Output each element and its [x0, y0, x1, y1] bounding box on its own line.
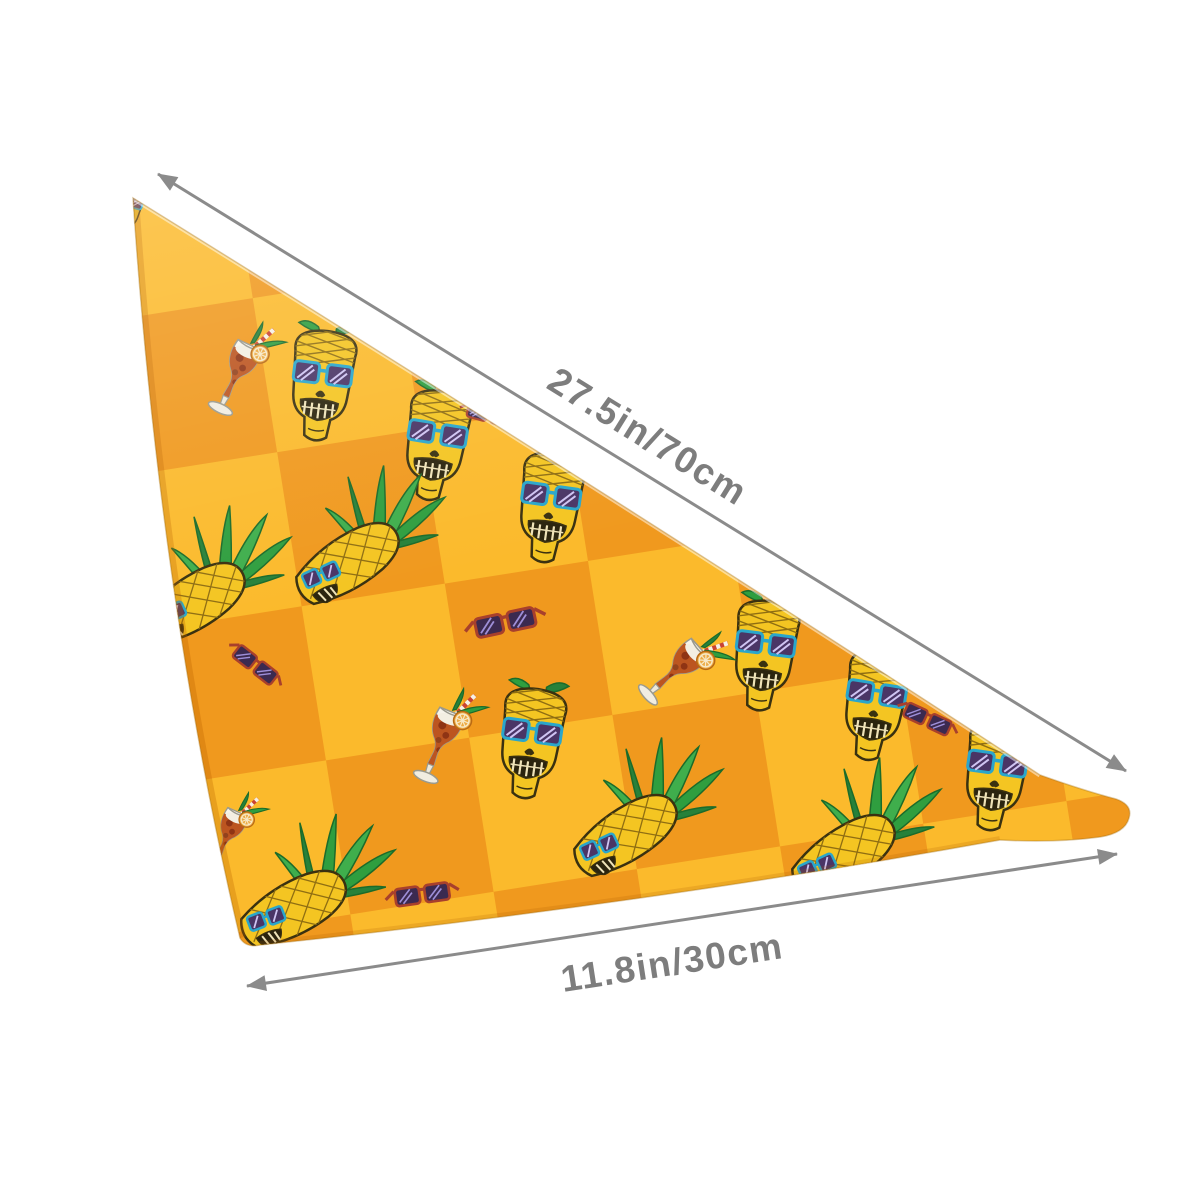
base-dimension-label: 11.8in/30cm: [558, 925, 786, 1000]
product-photo-stage: 27.5in/70cm 11.8in/30cm: [0, 0, 1200, 1200]
product-image: 27.5in/70cm 11.8in/30cm: [0, 0, 1200, 1200]
